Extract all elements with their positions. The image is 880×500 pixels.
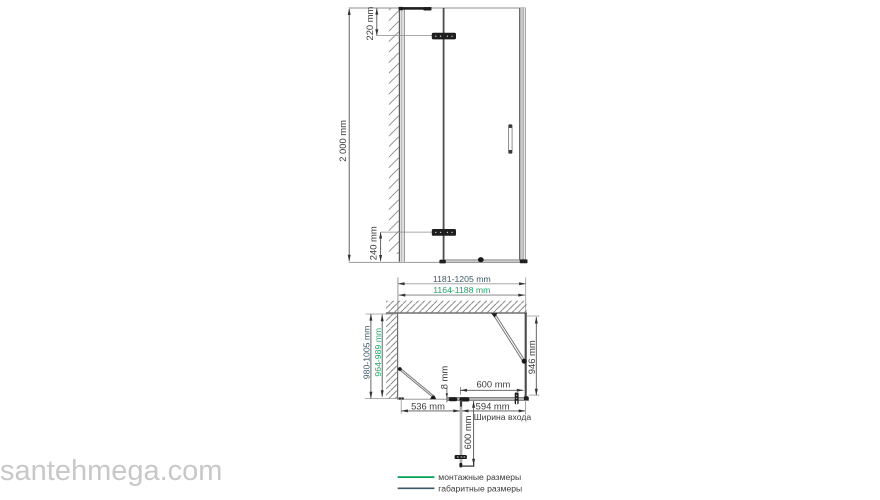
- svg-text:594 mm: 594 mm: [476, 401, 510, 412]
- svg-text:220 mm: 220 mm: [364, 6, 375, 40]
- svg-text:Ширина входа: Ширина входа: [474, 412, 532, 422]
- svg-text:santehmega.com: santehmega.com: [0, 455, 222, 487]
- svg-text:600 mm: 600 mm: [462, 415, 473, 449]
- svg-text:1164-1188 mm: 1164-1188 mm: [433, 285, 490, 295]
- svg-text:2 000 mm: 2 000 mm: [337, 120, 348, 162]
- svg-text:946 mm: 946 mm: [526, 340, 537, 374]
- svg-text:монтажные размеры: монтажные размеры: [438, 472, 521, 482]
- svg-text:600 mm: 600 mm: [476, 379, 510, 390]
- svg-text:240 mm: 240 mm: [368, 226, 379, 260]
- svg-text:габаритные размеры: габаритные размеры: [438, 483, 522, 493]
- svg-text:964-989 mm: 964-989 mm: [373, 328, 383, 377]
- svg-text:980-1005 mm: 980-1005 mm: [362, 326, 372, 380]
- svg-text:8 mm: 8 mm: [438, 366, 449, 390]
- svg-text:536 mm: 536 mm: [411, 401, 445, 412]
- svg-text:1181-1205 mm: 1181-1205 mm: [433, 274, 491, 284]
